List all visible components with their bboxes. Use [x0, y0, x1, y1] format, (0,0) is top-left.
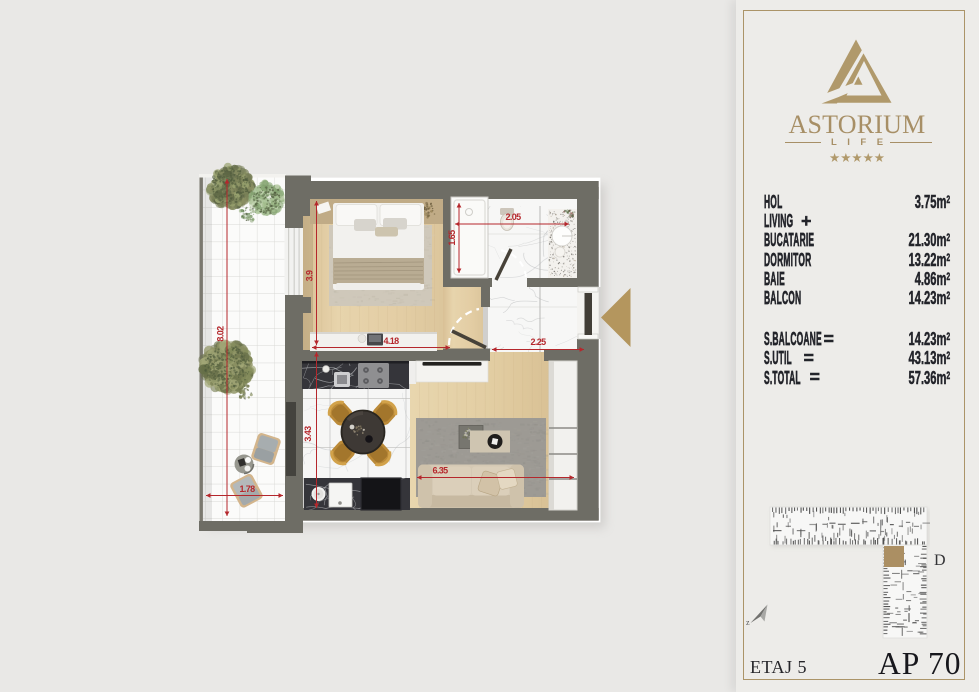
svg-text:3.9: 3.9 [305, 270, 315, 281]
svg-text:4.18: 4.18 [383, 336, 399, 346]
svg-text:8.02: 8.02 [216, 326, 226, 342]
svg-text:6.35: 6.35 [432, 466, 448, 476]
svg-text:3.43: 3.43 [303, 426, 313, 442]
svg-text:2.05: 2.05 [505, 212, 521, 222]
svg-text:1.78: 1.78 [239, 484, 255, 494]
svg-text:z: z [746, 618, 750, 627]
svg-text:2.25: 2.25 [530, 337, 546, 347]
svg-text:1.65: 1.65 [447, 230, 457, 246]
